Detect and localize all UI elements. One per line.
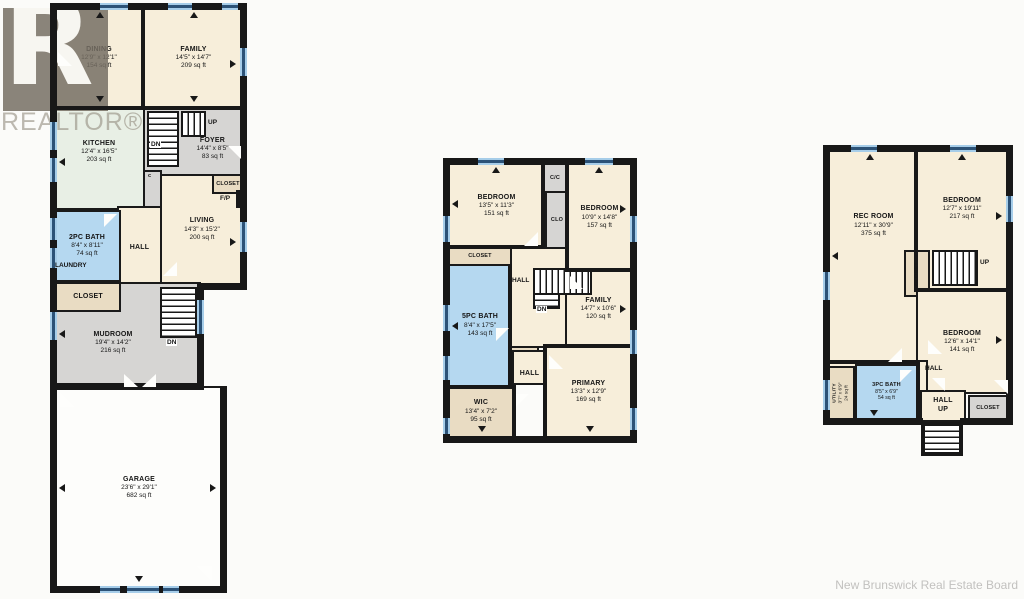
hall-lower: HALL (512, 350, 547, 385)
dim-arrow (620, 205, 626, 213)
window (240, 48, 247, 76)
room-family: FAMILY14'5" x 14'7"209 sq ft (143, 6, 244, 110)
label-hall: HALL (925, 365, 942, 372)
dim-arrow (996, 336, 1002, 344)
window (950, 145, 976, 152)
dim-arrow (96, 96, 104, 102)
window (630, 408, 637, 430)
closet-hall: CLOSET (55, 282, 121, 312)
wall (443, 158, 450, 443)
dim-arrow (595, 167, 603, 173)
dim-arrow (59, 330, 65, 338)
stairs-basement-up (932, 250, 978, 286)
floorplan-canvas: DINING12'9" x 12'1"154 sq ft FAMILY14'5"… (0, 0, 1024, 599)
wall (541, 163, 545, 249)
dim-arrow (230, 238, 236, 246)
label-dn: DN (536, 306, 547, 313)
stairs-foyer-up (181, 111, 206, 137)
window (50, 158, 57, 182)
window (163, 586, 179, 593)
dim-arrow (586, 426, 594, 432)
room-bedroom-2: BEDROOM10'9" x 14'8"157 sq ft (567, 163, 632, 272)
wall (50, 3, 57, 593)
hall-main: HALL (117, 206, 162, 290)
fireplace-block (236, 190, 244, 208)
wall (960, 418, 1013, 425)
window (851, 145, 877, 152)
window (443, 356, 450, 380)
wall (197, 283, 247, 290)
label-utility: UTILITY 3'7" x 6'9" 24 sq ft (826, 366, 857, 420)
dim-arrow (620, 305, 626, 313)
dim-arrow (870, 410, 878, 416)
dim-arrow (452, 200, 458, 208)
window (630, 216, 637, 242)
wall (545, 344, 632, 348)
window (100, 586, 120, 593)
window (100, 3, 128, 10)
window (823, 272, 830, 300)
board-credit: New Brunswick Real Estate Board (835, 578, 1018, 592)
label-laundry: LAUNDRY (55, 262, 87, 269)
dim-arrow (452, 322, 458, 330)
label-dn: DN (150, 141, 161, 148)
window (478, 158, 504, 165)
realtor-wordmark: REALTOR® (1, 108, 141, 137)
wall (50, 3, 247, 10)
dim-arrow (832, 252, 838, 260)
label-up: UP (980, 259, 989, 266)
dim-arrow (210, 484, 216, 492)
window (1006, 196, 1013, 222)
wall (630, 158, 637, 443)
room-garage: GARAGE23'6" x 29'1"682 sq ft (53, 386, 225, 590)
wall (448, 385, 514, 389)
dim-arrow (230, 60, 236, 68)
wall (512, 385, 516, 438)
window (197, 300, 204, 334)
dim-arrow (492, 167, 500, 173)
wall (220, 386, 227, 593)
room-primary: PRIMARY13'3" x 12'9"169 sq ft (545, 346, 632, 438)
dim-arrow (478, 426, 486, 432)
window (585, 158, 613, 165)
window (168, 3, 192, 10)
dim-arrow (59, 158, 65, 166)
window (630, 330, 637, 354)
door (516, 394, 529, 407)
dim-arrow (190, 12, 198, 18)
window (50, 312, 57, 340)
label-hall-upper: HALL (512, 277, 529, 284)
dim-arrow (96, 12, 104, 18)
label-dn-mudroom: DN (166, 339, 177, 346)
label-door-c: c (148, 173, 151, 179)
stairs-foyer-down (147, 111, 179, 167)
stairs-upper-flight (533, 268, 592, 295)
room-2pc-bath: 2PC BATH8'4" x 8'11"74 sq ft (53, 210, 121, 282)
dim-arrow (190, 96, 198, 102)
label-up: UP (208, 119, 217, 126)
stairs-basement-stub (921, 422, 963, 456)
wall (565, 163, 569, 272)
wall (141, 6, 145, 110)
room-bedroom-1: BEDROOM13'5" x 11'3"151 sq ft (448, 163, 545, 249)
realtor-logo-letter: R (3, 8, 94, 102)
dim-arrow (59, 484, 65, 492)
dim-arrow (958, 154, 966, 160)
window (443, 216, 450, 242)
wall (143, 106, 247, 110)
wall (53, 106, 145, 110)
label-fireplace: F/P (220, 195, 230, 202)
window (240, 222, 247, 252)
window (222, 3, 238, 10)
window (50, 122, 57, 150)
wall (565, 268, 632, 272)
wall (443, 436, 637, 443)
wall (916, 362, 920, 420)
window (443, 418, 450, 434)
window (443, 305, 450, 331)
wall (823, 360, 919, 364)
dim-arrow (996, 212, 1002, 220)
label-closet-stairs: CLOSET (904, 250, 930, 297)
dim-arrow (135, 576, 143, 582)
dim-arrow (866, 154, 874, 160)
window (50, 218, 57, 240)
window (127, 586, 159, 593)
stairs-mudroom-down (160, 287, 197, 338)
wall (543, 344, 547, 438)
